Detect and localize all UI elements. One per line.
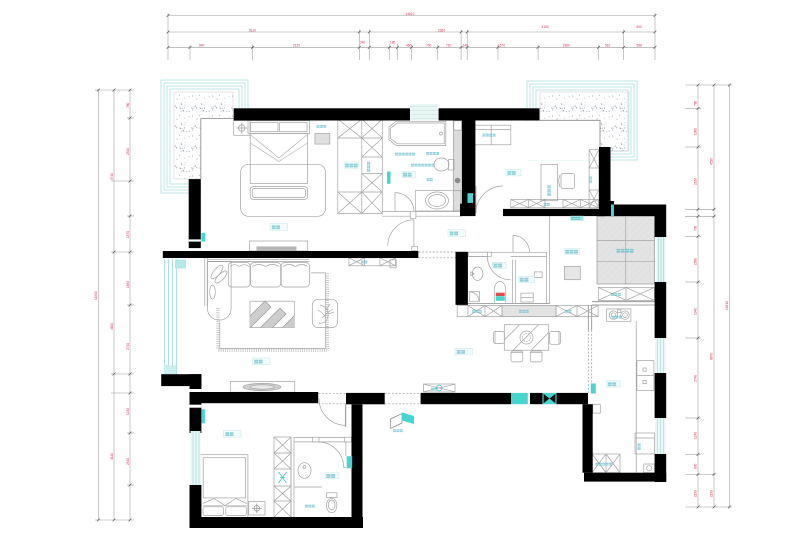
svg-text:14610: 14610 (406, 12, 415, 16)
svg-text:4520: 4520 (710, 158, 714, 165)
svg-text:1240: 1240 (694, 432, 698, 439)
svg-text:3740: 3740 (110, 173, 114, 180)
svg-text:1570: 1570 (498, 44, 505, 48)
svg-text:1690: 1690 (126, 281, 130, 288)
svg-text:1130: 1130 (694, 490, 698, 497)
svg-text:14610: 14610 (725, 301, 729, 310)
svg-text:4620: 4620 (110, 323, 114, 330)
svg-text:1940: 1940 (694, 308, 698, 315)
svg-text:5110: 5110 (249, 28, 256, 32)
svg-text:180: 180 (390, 41, 396, 45)
svg-text:1580: 1580 (694, 258, 698, 265)
svg-text:4150: 4150 (542, 25, 549, 29)
svg-text:2540: 2540 (126, 148, 130, 155)
svg-text:1980: 1980 (563, 44, 570, 48)
svg-text:598: 598 (637, 44, 643, 48)
svg-text:460: 460 (406, 44, 412, 48)
svg-text:690: 690 (694, 463, 698, 469)
svg-text:700: 700 (426, 44, 432, 48)
svg-text:640: 640 (199, 44, 205, 48)
svg-text:510: 510 (605, 44, 611, 48)
svg-text:600: 600 (637, 25, 643, 29)
svg-text:2120: 2120 (293, 44, 300, 48)
svg-text:1130: 1130 (710, 490, 714, 497)
svg-text:2160: 2160 (694, 178, 698, 185)
svg-text:1240: 1240 (126, 408, 130, 415)
svg-text:2740: 2740 (126, 343, 130, 350)
svg-text:780: 780 (694, 100, 698, 106)
svg-text:3140: 3140 (110, 453, 114, 460)
svg-text:710: 710 (446, 44, 452, 48)
svg-text:8870: 8870 (710, 353, 714, 360)
svg-text:1570: 1570 (126, 231, 130, 238)
svg-text:780: 780 (126, 102, 130, 108)
svg-text:2540: 2540 (126, 458, 130, 465)
svg-text:240: 240 (360, 41, 366, 45)
svg-text:1380: 1380 (694, 128, 698, 135)
svg-text:700: 700 (694, 225, 698, 231)
svg-text:2360: 2360 (438, 28, 445, 32)
svg-text:2740: 2740 (694, 375, 698, 382)
svg-text:11500: 11500 (94, 291, 98, 300)
